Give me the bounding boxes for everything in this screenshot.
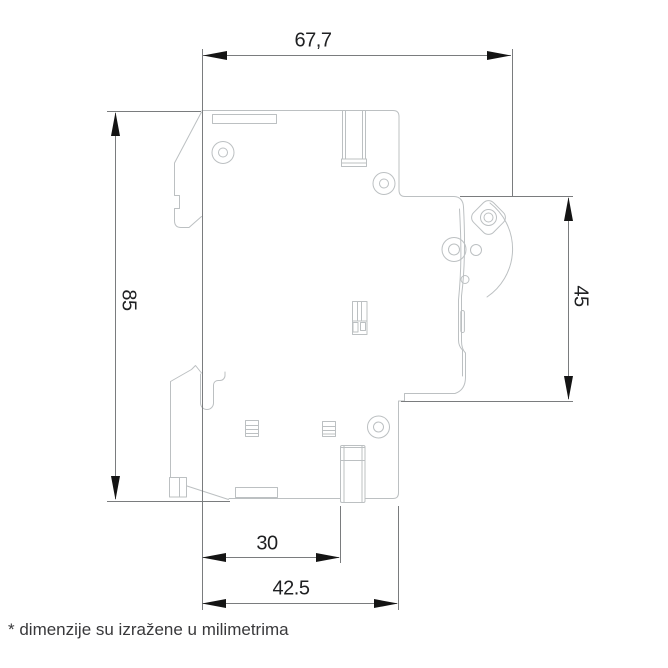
screw-lower-right <box>368 416 390 438</box>
dim-label-left-height: 85 <box>117 289 140 310</box>
dim-label-right-height: 45 <box>569 285 592 306</box>
label-slot <box>236 488 278 498</box>
screw-top-left <box>212 142 234 164</box>
arrow-top-right <box>487 51 511 60</box>
din-clip-foot <box>170 478 187 498</box>
dim-label-bottom-inner-width: 30 <box>256 533 277 556</box>
arrow-45-bottom <box>564 376 573 400</box>
arrow-top-left <box>203 51 227 60</box>
arrow-425-left <box>202 599 226 608</box>
breaker-side-view-drawing <box>0 0 668 668</box>
toggle-handle <box>442 198 513 297</box>
handle-swing-arc <box>487 203 513 297</box>
clamp-icon-left <box>246 421 259 437</box>
arrow-30-right <box>316 553 340 562</box>
arrow-30-left <box>202 553 226 562</box>
top-vent-slot <box>213 115 277 124</box>
latch-component <box>353 302 368 335</box>
units-footnote: * dimenzije su izražene u milimetrima <box>8 620 289 640</box>
clamp-icon-right <box>323 422 336 437</box>
din-clip-slot <box>201 372 226 409</box>
din-claw-top <box>175 112 202 228</box>
housing-outline <box>202 111 466 499</box>
dim-label-bottom-outer-width: 42.5 <box>273 578 310 601</box>
arrow-85-top <box>111 112 120 136</box>
screw-upper-right <box>373 173 395 195</box>
arrow-85-bottom <box>111 476 120 500</box>
din-clip-outer <box>171 366 202 478</box>
terminal-block-top <box>342 111 367 167</box>
dim-label-top-width: 67,7 <box>295 30 332 53</box>
terminal-block-bottom <box>341 446 366 503</box>
din-clip-release-slope <box>187 486 229 500</box>
drawing-canvas: 67,7 85 45 30 42.5 * dimenzije su izraže… <box>0 0 668 668</box>
arrow-45-top <box>564 197 573 221</box>
arrow-425-right <box>374 599 398 608</box>
